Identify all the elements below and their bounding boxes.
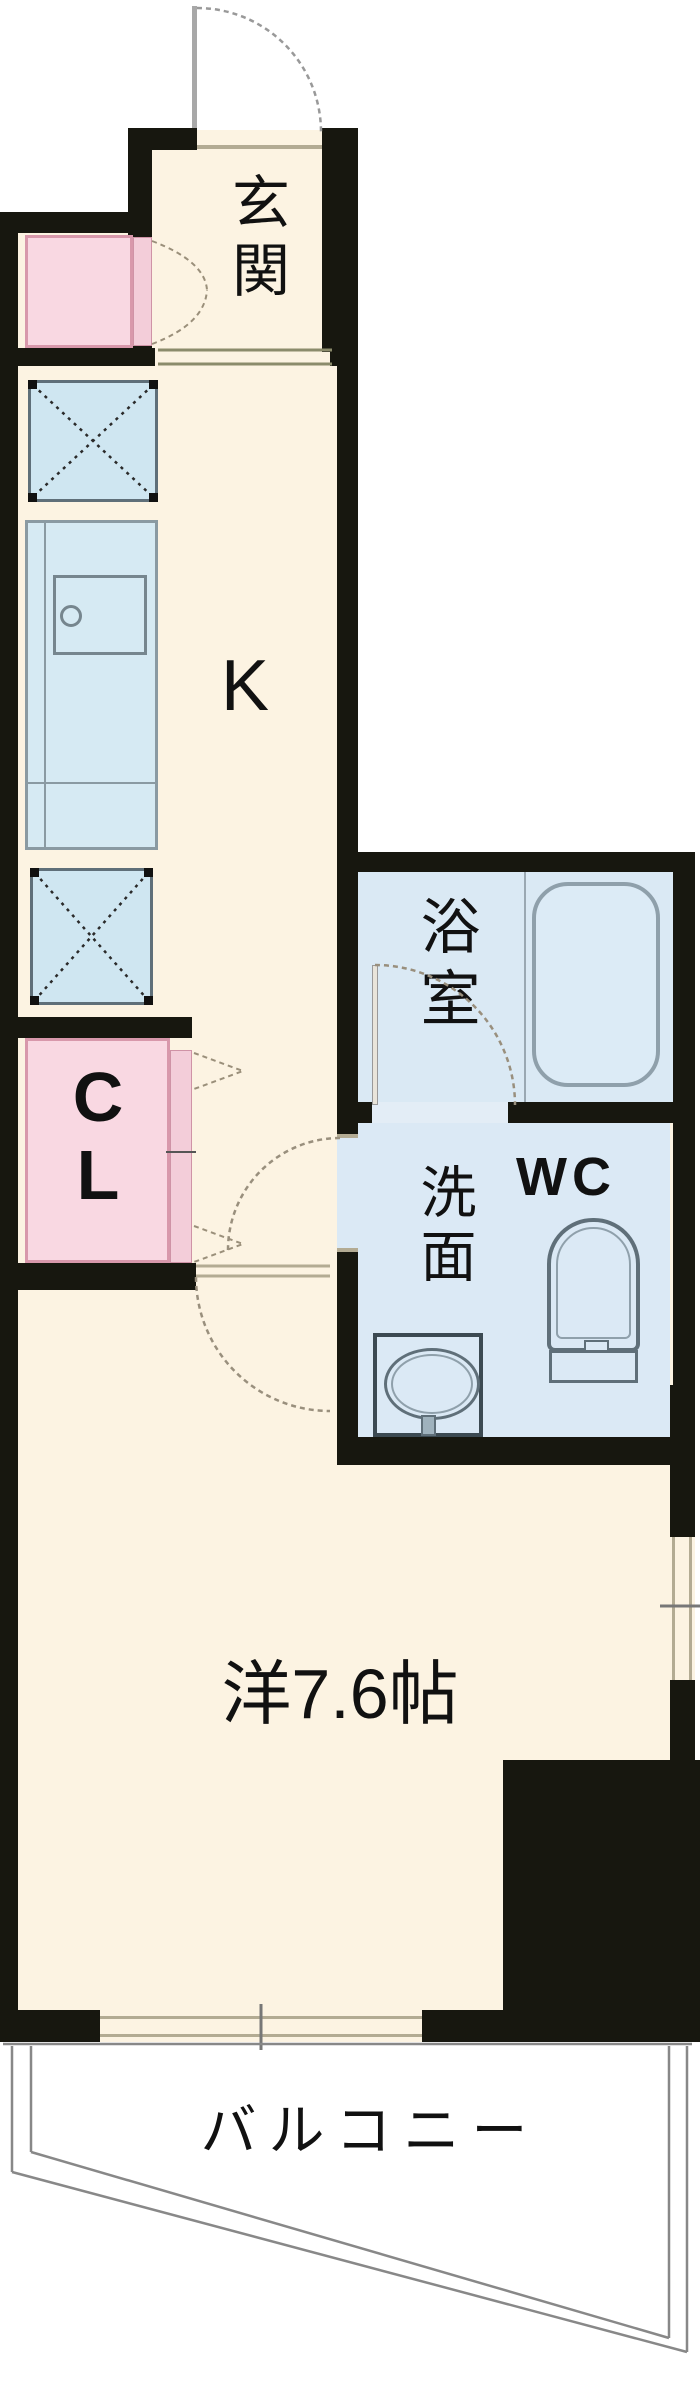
vanity-faucet [421, 1415, 436, 1436]
entrance-label: 玄関 [213, 172, 297, 308]
window-bottom-line [100, 2016, 422, 2019]
closet-door [170, 1050, 192, 1263]
washroom-door-jamb [337, 1248, 358, 1252]
bath-door-threshold [372, 1102, 508, 1123]
bath-seam-line [524, 872, 526, 1102]
toilet-tank [549, 1350, 638, 1383]
shoe-cabinet [25, 235, 133, 348]
wall [422, 2010, 510, 2042]
wall [358, 1102, 372, 1123]
main-room-label: 洋7.6帖 [185, 1638, 495, 1739]
wall [0, 1263, 196, 1290]
window-right-line [672, 1537, 675, 1680]
wall [18, 348, 155, 366]
entrance-threshold [197, 145, 322, 149]
wall [322, 150, 358, 352]
washroom-label: 洗面 [404, 1163, 485, 1291]
washroom-door-opening [337, 1137, 358, 1250]
lower-x-space [30, 868, 153, 1005]
pillar-block [503, 1760, 700, 2042]
entrance-door-arc [197, 8, 321, 132]
kitchen-counter-divider [27, 782, 156, 784]
kitchen-faucet [60, 605, 82, 627]
wall [0, 1017, 192, 1038]
washroom-door-jamb [337, 1134, 358, 1138]
wall [670, 1465, 695, 1537]
shoe-cabinet-door [133, 237, 152, 346]
kitchen-counter-edge [44, 522, 46, 848]
entrance-door-leaf [192, 6, 197, 132]
bath-label: 浴室 [402, 895, 489, 1039]
window-right-line [689, 1537, 692, 1680]
closet-letter-l: L [58, 1136, 138, 1214]
kitchen-label: K [205, 645, 285, 727]
wall-bath-right [673, 852, 695, 1465]
wall [670, 1680, 695, 1760]
wall-outer-left [0, 212, 18, 2042]
closet-letter-c: C [58, 1058, 138, 1136]
wall [0, 2010, 100, 2042]
upper-x-space [28, 380, 158, 502]
wall [128, 128, 197, 150]
wall [337, 1250, 358, 1465]
floorplan-canvas: C L 浴室 WC 洗面 玄関 K 洋7.6帖 バルコニー [0, 0, 700, 2385]
wall-bath-top [337, 852, 695, 872]
toilet-bowl-inner [556, 1227, 631, 1339]
wall [322, 128, 358, 150]
wall [508, 1102, 673, 1123]
balcony-label: バルコニー [140, 2086, 600, 2167]
closet-label: C L [58, 1058, 138, 1214]
wall [337, 1437, 527, 1465]
vanity-basin-inner [391, 1354, 473, 1414]
window-bottom [100, 2010, 422, 2042]
bath-door-leaf [372, 965, 378, 1105]
bathtub [532, 882, 660, 1087]
wc-label: WC [516, 1146, 656, 1208]
wall [0, 212, 150, 233]
wall-corridor-right [337, 352, 358, 1137]
window-bottom-line [100, 2034, 422, 2037]
